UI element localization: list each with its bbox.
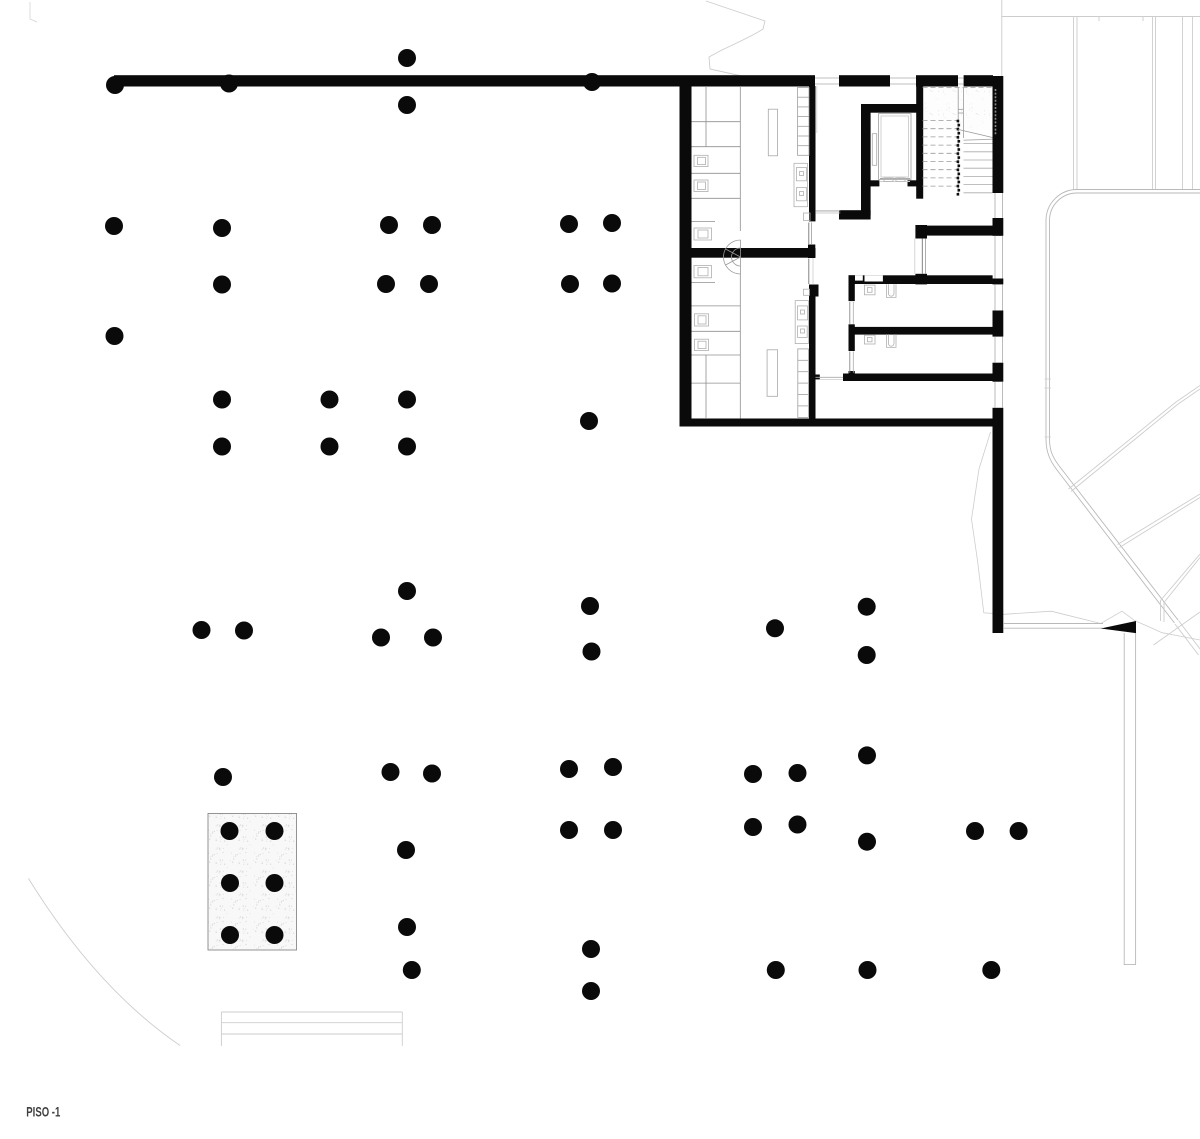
svg-text:PISO -1: PISO -1 — [26, 1103, 60, 1119]
